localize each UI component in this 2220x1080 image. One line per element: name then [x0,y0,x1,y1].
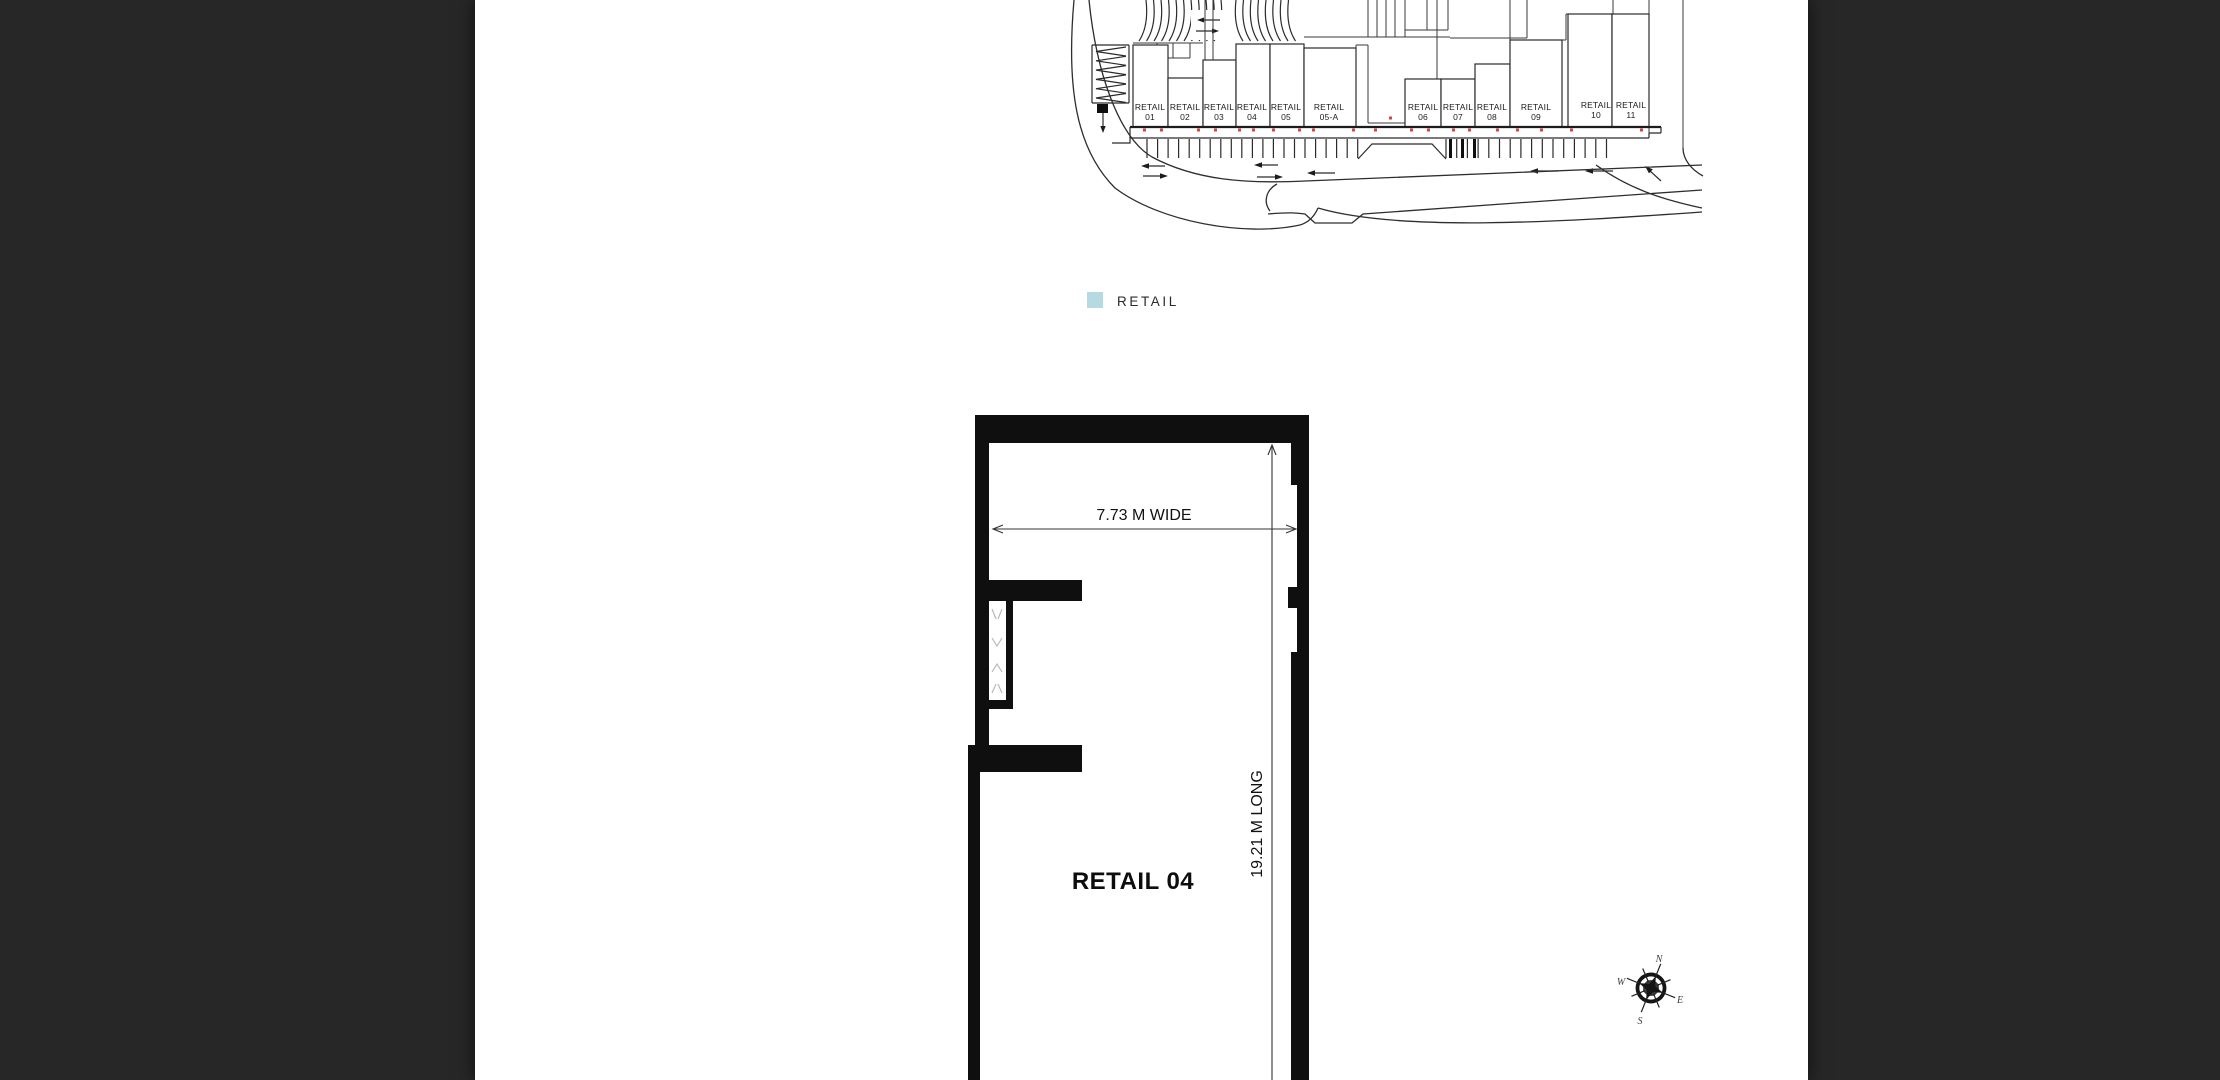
svg-text:11: 11 [1626,110,1635,120]
svg-text:RETAIL: RETAIL [1477,102,1507,112]
floor-plan: 7.73 M WIDE 19.21 M LONG RETAIL 04 [968,415,1309,1080]
legend: RETAIL [1087,292,1179,309]
shaft-cap [989,700,1013,709]
svg-text:RETAIL: RETAIL [1204,102,1234,112]
site-plan-unit-11: RETAIL 11 [1612,14,1649,127]
svg-text:03: 03 [1214,112,1224,122]
site-plan-unit-05: RETAIL 05 [1270,44,1304,127]
site-plan-unit-02: RETAIL 02 [1168,78,1203,127]
entrance-trapezoid [1358,144,1446,159]
unit-label: RETAIL [1135,102,1165,112]
site-plan-unit-06: RETAIL 06 [1405,79,1441,127]
svg-text:RETAIL: RETAIL [1408,102,1438,112]
wall-top [975,415,1309,443]
svg-text:09: 09 [1531,112,1541,122]
dimension-width: 7.73 M WIDE [993,507,1296,533]
plan-drawing: RETAIL 01 RETAIL 02 RETAIL 03 RETAIL 04 [0,0,2220,1080]
compass-west-label: W [1617,977,1627,988]
site-plan-unit-07: RETAIL 07 [1441,79,1475,127]
legend-swatch-retail [1087,292,1103,308]
wall-left-lower [968,772,980,1080]
site-plan-unit-05A: RETAIL 05-A [1304,48,1356,127]
legend-label-retail: RETAIL [1117,294,1179,309]
svg-text:RETAIL: RETAIL [1521,102,1551,112]
length-dimension-label: 19.21 M LONG [1249,770,1266,878]
floor-plan-unit-name: RETAIL 04 [1072,868,1194,895]
site-plan-unit-03: RETAIL 03 [1203,60,1236,127]
site-plan: RETAIL 01 RETAIL 02 RETAIL 03 RETAIL 04 [1072,0,1703,229]
site-plan-unit-04: RETAIL 04 [1236,44,1270,127]
svg-text:RETAIL: RETAIL [1314,102,1344,112]
width-dimension-label: 7.73 M WIDE [1096,507,1191,524]
viewer-background: RETAIL 01 RETAIL 02 RETAIL 03 RETAIL 04 [0,0,2220,1080]
compass-rose: N W E S [1617,954,1685,1027]
svg-text:05: 05 [1281,112,1291,122]
site-plan-unit-08: RETAIL 08 [1475,64,1510,127]
svg-text:07: 07 [1453,112,1463,122]
wall-right [1297,443,1309,1080]
svg-text:RETAIL: RETAIL [1170,102,1200,112]
compass-east-label: E [1676,995,1683,1006]
shaft-ladder-marks [992,609,1002,693]
svg-text:RETAIL: RETAIL [1616,100,1646,110]
aisle-arrow-box [1191,10,1224,40]
site-plan-unit-10: RETAIL 10 [1568,14,1612,127]
site-plan-unit-01: RETAIL 01 [1133,45,1168,127]
site-plan-unit-09: RETAIL 09 [1510,40,1562,127]
unit-number: 01 [1145,112,1155,122]
compass-north-label: N [1655,954,1664,965]
hatch-stalls-right [1235,0,1295,41]
wall-stub-lower [968,745,1082,772]
chevron-stall-column [1092,45,1129,133]
svg-text:04: 04 [1247,112,1257,122]
svg-text:05-A: 05-A [1320,112,1339,122]
parking-stalls [1147,139,1607,159]
svg-text:08: 08 [1487,112,1497,122]
svg-text:02: 02 [1180,112,1190,122]
svg-text:RETAIL: RETAIL [1237,102,1267,112]
svg-text:RETAIL: RETAIL [1271,102,1301,112]
compass-south-label: S [1638,1016,1643,1027]
dimension-length: 19.21 M LONG [1249,445,1276,1080]
svg-text:RETAIL: RETAIL [1443,102,1473,112]
svg-text:RETAIL: RETAIL [1581,100,1611,110]
wall-stub-upper [975,580,1082,601]
svg-text:10: 10 [1591,110,1601,120]
svg-text:06: 06 [1418,112,1428,122]
shaft-wall [1006,601,1013,702]
